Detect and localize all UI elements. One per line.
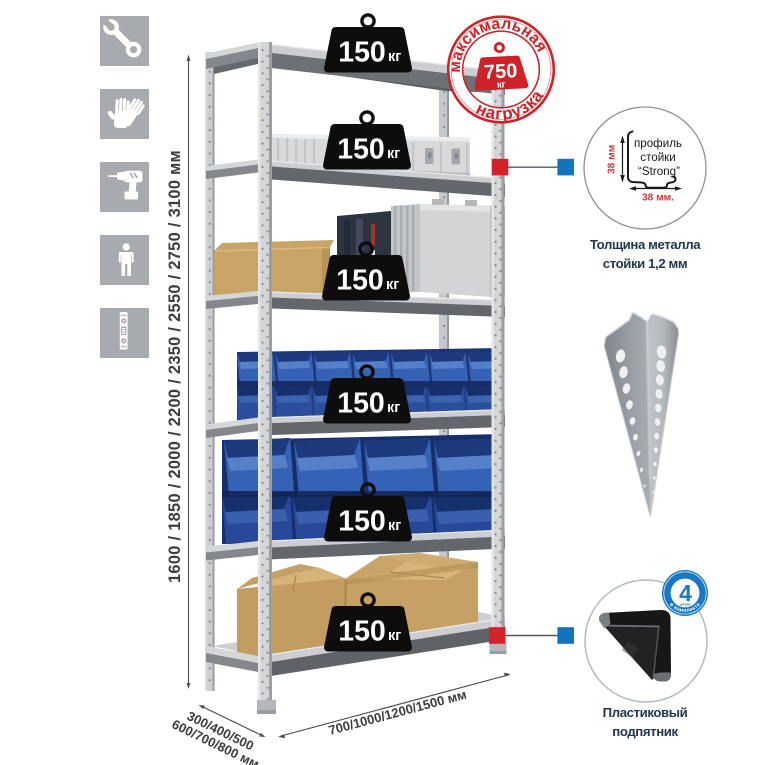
svg-text:Толщина металла: Толщина металла [590, 237, 701, 252]
svg-text:700/1000/1200/1500 мм: 700/1000/1200/1500 мм [327, 687, 468, 738]
svg-text:38 мм: 38 мм [607, 145, 618, 174]
svg-text:кг: кг [497, 79, 506, 90]
svg-text:профиль: профиль [634, 137, 682, 150]
svg-text:Пластиковый: Пластиковый [603, 705, 688, 720]
svg-text:1600 / 1850 / 2000 / 2200 / 23: 1600 / 1850 / 2000 / 2200 / 2350 / 2550 … [166, 150, 184, 583]
svg-text:стойки 1,2 мм: стойки 1,2 мм [603, 256, 687, 271]
svg-text:подпятник: подпятник [612, 724, 678, 739]
svg-text:“Strong”: “Strong” [638, 165, 680, 178]
svg-text:штуки: штуки [680, 603, 691, 607]
svg-text:стойки: стойки [640, 151, 675, 164]
svg-text:38 мм.: 38 мм. [642, 193, 674, 204]
